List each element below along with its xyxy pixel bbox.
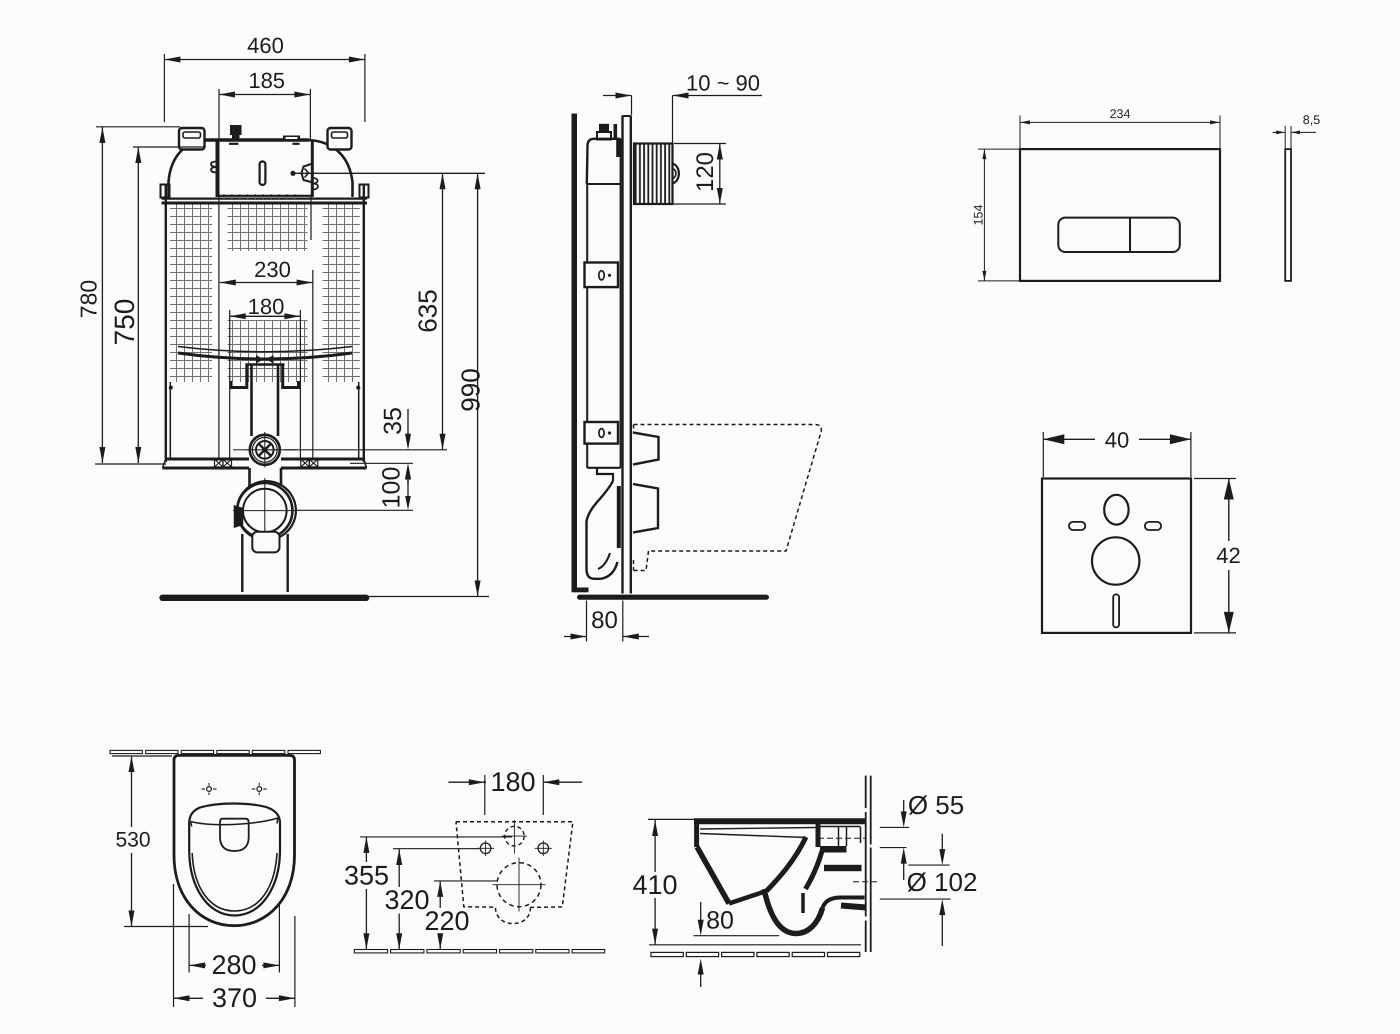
svg-text:Ø 55: Ø 55 xyxy=(908,790,964,820)
svg-text:230: 230 xyxy=(254,257,291,282)
svg-text:154: 154 xyxy=(972,205,986,226)
svg-text:80: 80 xyxy=(591,607,618,634)
svg-text:185: 185 xyxy=(248,68,285,93)
svg-text:80: 80 xyxy=(706,907,734,935)
svg-text:320: 320 xyxy=(384,885,429,915)
svg-text:10 ~ 90: 10 ~ 90 xyxy=(686,71,760,96)
svg-text:42: 42 xyxy=(1216,543,1240,568)
svg-text:100: 100 xyxy=(378,467,406,509)
svg-text:280: 280 xyxy=(211,950,256,980)
svg-text:355: 355 xyxy=(344,861,389,891)
svg-text:Ø 102: Ø 102 xyxy=(907,867,978,897)
svg-text:635: 635 xyxy=(413,289,443,332)
svg-text:120: 120 xyxy=(692,152,719,192)
svg-text:234: 234 xyxy=(1110,107,1131,121)
svg-text:180: 180 xyxy=(248,294,285,319)
svg-text:780: 780 xyxy=(76,280,102,318)
svg-text:460: 460 xyxy=(247,33,284,58)
svg-text:370: 370 xyxy=(212,983,257,1013)
svg-text:40: 40 xyxy=(1105,427,1129,452)
svg-text:990: 990 xyxy=(456,368,486,411)
svg-text:750: 750 xyxy=(109,299,140,346)
svg-text:530: 530 xyxy=(115,829,150,852)
svg-text:410: 410 xyxy=(632,870,677,900)
svg-text:35: 35 xyxy=(379,407,407,435)
svg-text:180: 180 xyxy=(490,767,535,797)
svg-text:8,5: 8,5 xyxy=(1303,113,1320,127)
svg-text:220: 220 xyxy=(424,906,469,936)
